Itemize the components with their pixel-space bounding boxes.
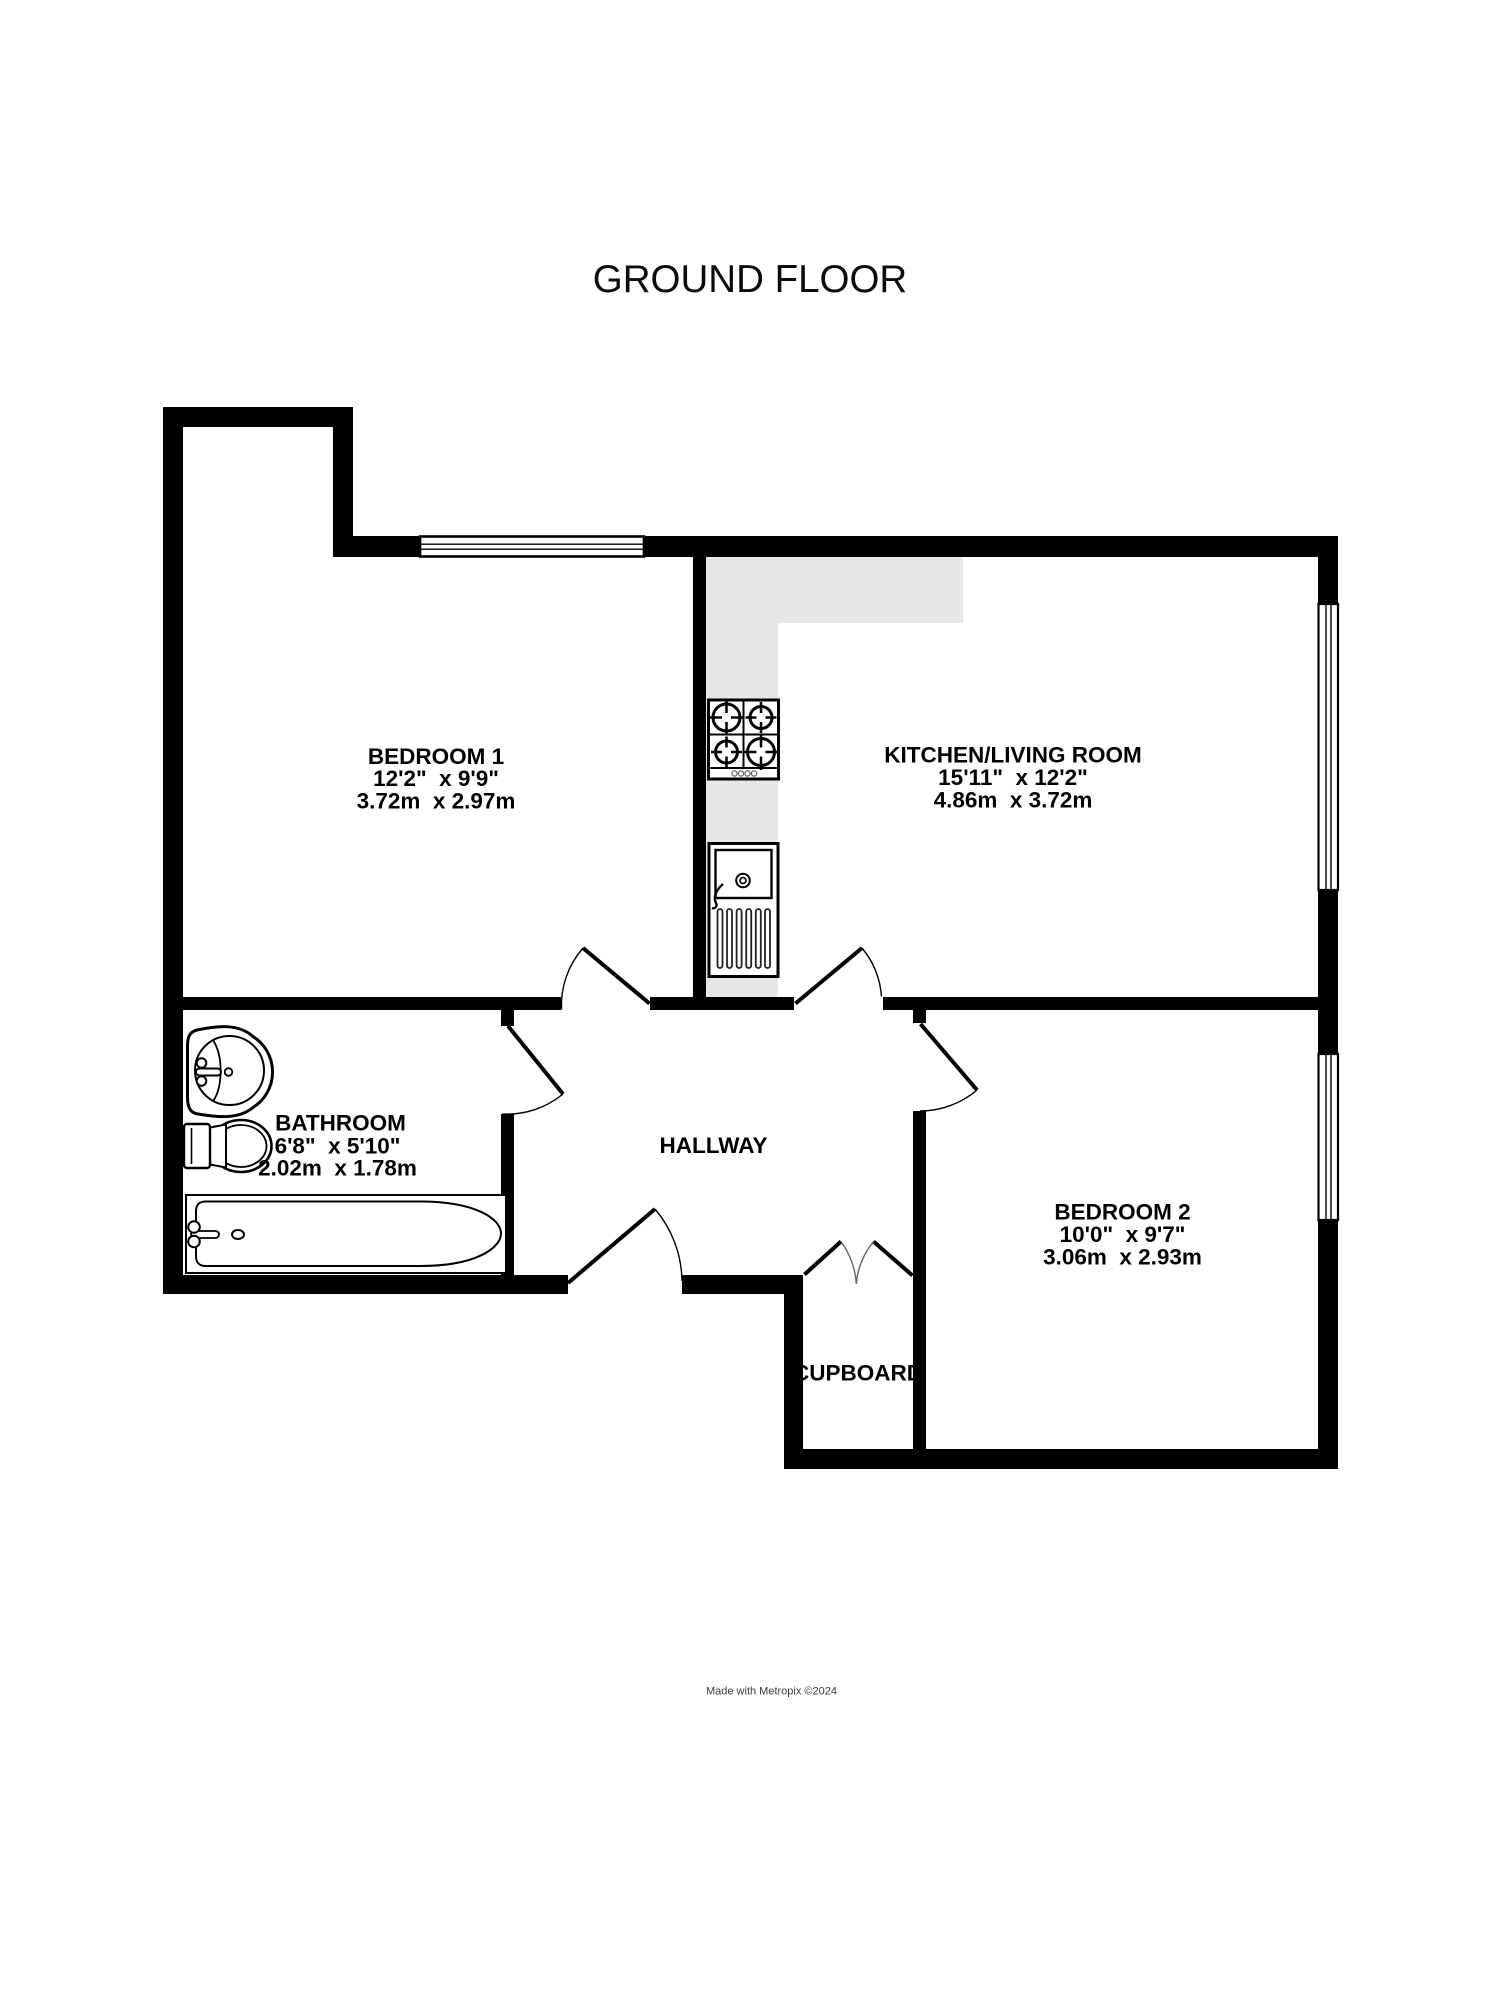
svg-text:KITCHEN/LIVING ROOM: KITCHEN/LIVING ROOM xyxy=(884,743,1142,768)
svg-text:3.72m x 2.97m: 3.72m x 2.97m xyxy=(357,789,516,814)
svg-text:GROUND FLOOR: GROUND FLOOR xyxy=(593,258,907,301)
svg-text:10'0" x 9'7": 10'0" x 9'7" xyxy=(1060,1222,1186,1247)
svg-text:4.86m x 3.72m: 4.86m x 3.72m xyxy=(934,788,1093,813)
svg-text:Made with Metropix ©2024: Made with Metropix ©2024 xyxy=(706,1686,837,1698)
svg-text:3.06m x 2.93m: 3.06m x 2.93m xyxy=(1043,1245,1202,1270)
svg-text:CUPBOARD: CUPBOARD xyxy=(793,1361,923,1386)
svg-text:15'11" x 12'2": 15'11" x 12'2" xyxy=(938,765,1088,790)
svg-text:2.02m x 1.78m: 2.02m x 1.78m xyxy=(258,1156,417,1181)
svg-text:HALLWAY: HALLWAY xyxy=(660,1133,768,1158)
svg-text:BEDROOM 2: BEDROOM 2 xyxy=(1054,1200,1190,1225)
svg-text:BATHROOM: BATHROOM xyxy=(275,1111,406,1136)
svg-text:12'2" x 9'9": 12'2" x 9'9" xyxy=(373,766,499,791)
